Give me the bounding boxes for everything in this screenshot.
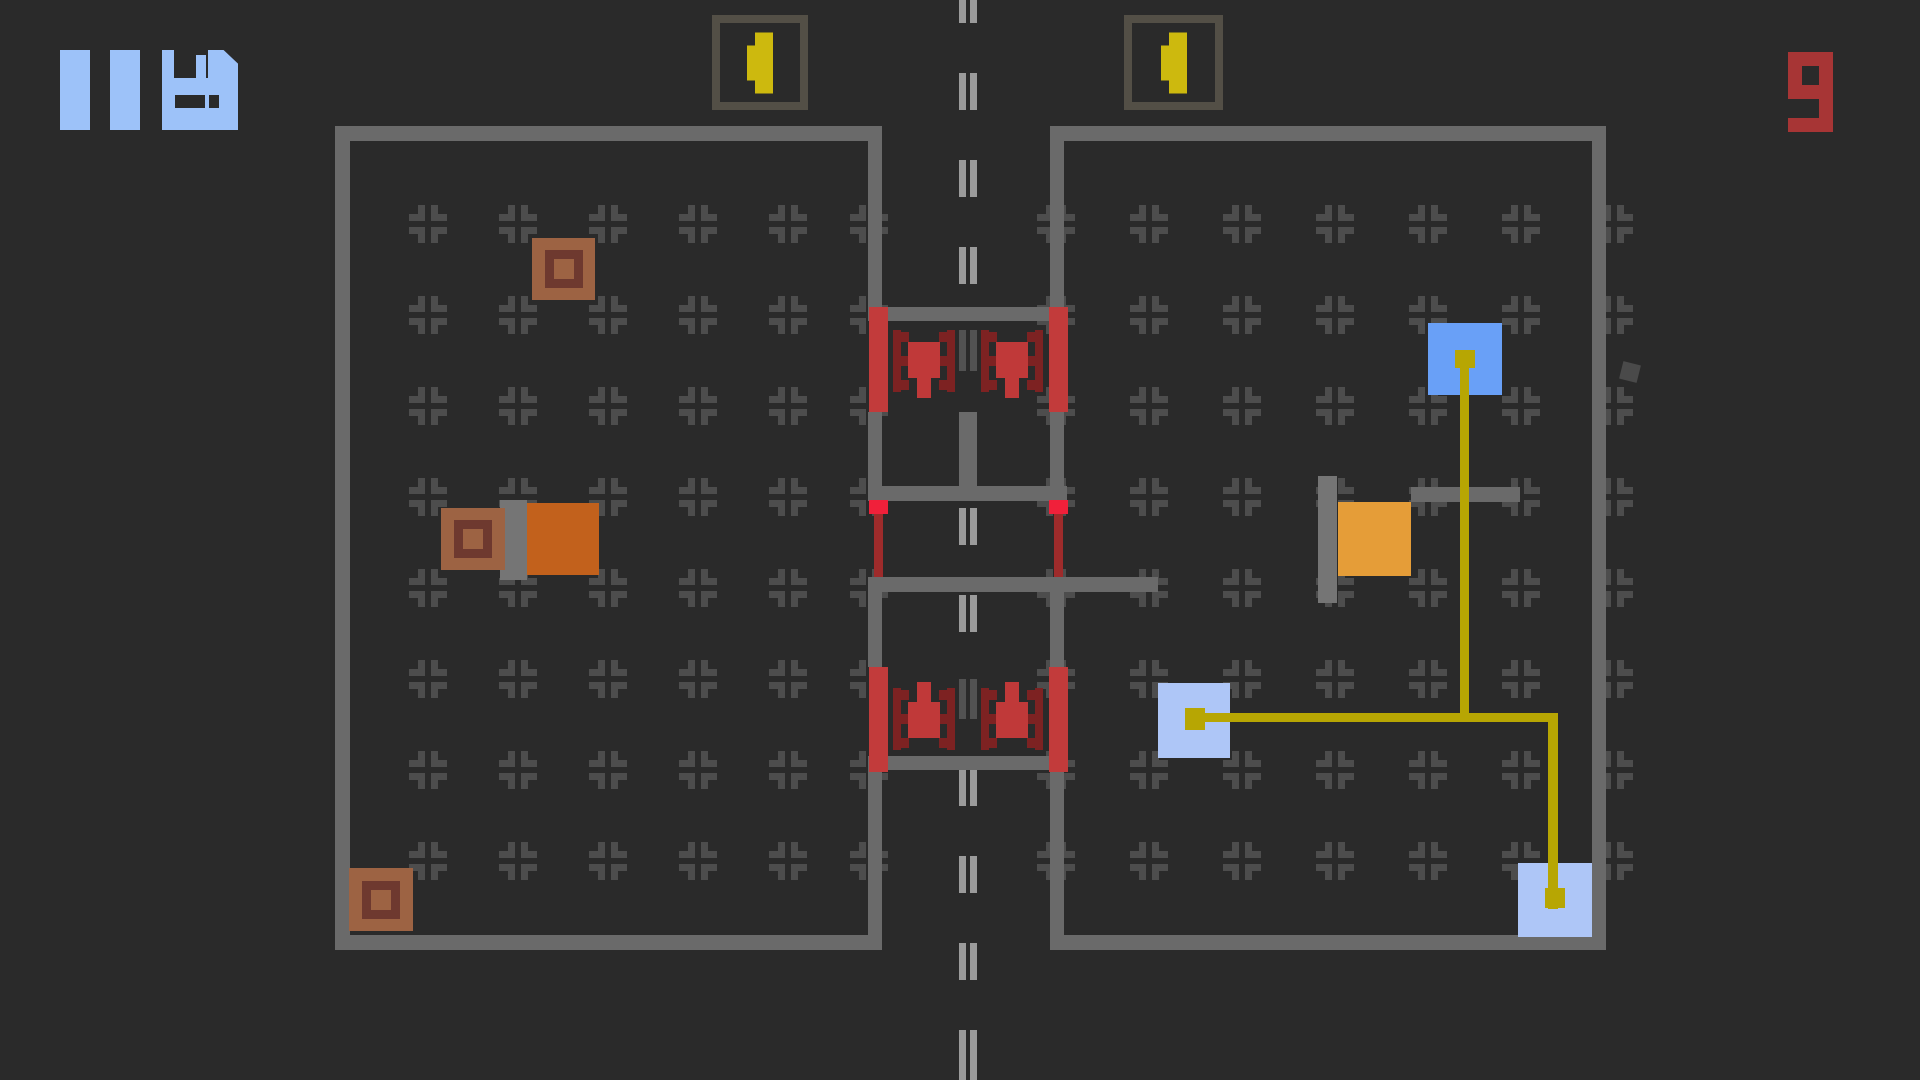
floor-marker-grid xyxy=(1316,387,1354,425)
emitter-cap xyxy=(869,500,888,514)
floor-marker-grid xyxy=(769,478,807,516)
floor-marker-grid xyxy=(769,205,807,243)
floor-marker-grid xyxy=(1409,660,1447,698)
turret-barrel xyxy=(1005,682,1019,702)
resource-crate[interactable] xyxy=(532,238,595,300)
floppy-label xyxy=(175,95,205,108)
turret-up[interactable] xyxy=(893,682,955,750)
machine-block-amber[interactable] xyxy=(1338,502,1411,576)
floor-marker-grid xyxy=(679,842,717,880)
floor-marker-grid xyxy=(1502,387,1540,425)
barrier-emitter[interactable] xyxy=(1049,500,1068,577)
barrier-emitter[interactable] xyxy=(869,500,888,577)
floor-marker-grid xyxy=(1316,296,1354,334)
floor-marker-grid xyxy=(769,387,807,425)
floor-marker-grid xyxy=(1502,296,1540,334)
turret-track xyxy=(1035,330,1043,392)
floor-marker-grid xyxy=(1223,478,1261,516)
floor-marker-grid xyxy=(589,751,627,789)
floor-marker-grid xyxy=(1130,205,1168,243)
wall xyxy=(868,770,882,935)
turret-body xyxy=(908,342,940,378)
save-button[interactable] xyxy=(162,50,238,130)
wall xyxy=(1592,126,1606,950)
floor-marker-grid xyxy=(499,751,537,789)
floor-marker-grid xyxy=(589,842,627,880)
floor-marker-grid xyxy=(409,296,447,334)
pause-icon xyxy=(60,50,90,130)
floor-marker-grid xyxy=(589,296,627,334)
floor-marker-grid xyxy=(409,842,447,880)
floor-marker-grid xyxy=(499,660,537,698)
floor-marker-grid xyxy=(409,660,447,698)
floppy-disk-icon xyxy=(162,50,238,130)
floor-marker-grid xyxy=(1223,842,1261,880)
floor-marker-grid xyxy=(1409,205,1447,243)
wall xyxy=(959,412,977,492)
floor-marker-grid xyxy=(409,751,447,789)
floor-marker-grid xyxy=(1316,205,1354,243)
pause-icon xyxy=(110,50,140,130)
floor-marker-grid xyxy=(409,205,447,243)
floor-marker-grid xyxy=(679,660,717,698)
road-centerline-dim xyxy=(959,321,977,412)
floor-marker-grid xyxy=(589,660,627,698)
dock-bar[interactable] xyxy=(1318,476,1337,603)
floor-marker-grid xyxy=(1316,842,1354,880)
floor-marker-grid xyxy=(1223,296,1261,334)
road-centerline-dim xyxy=(959,665,977,755)
emitter-beam xyxy=(874,514,883,577)
crate-ring xyxy=(454,520,492,558)
turret-track xyxy=(1035,688,1043,750)
turret-track xyxy=(947,330,955,392)
floor-marker-grid xyxy=(679,205,717,243)
floor-marker-grid xyxy=(679,478,717,516)
floor-marker-grid xyxy=(679,296,717,334)
conveyor-line xyxy=(1548,713,1558,909)
wall xyxy=(868,592,882,667)
wall xyxy=(1050,126,1064,307)
floor-marker-grid xyxy=(769,569,807,607)
floor-marker-grid xyxy=(679,569,717,607)
floor-marker-grid xyxy=(1502,205,1540,243)
gate-post[interactable] xyxy=(869,307,888,412)
flag-icon xyxy=(1161,32,1187,93)
floor-marker-grid xyxy=(1130,296,1168,334)
flag-slot[interactable] xyxy=(1124,15,1223,110)
conveyor-node xyxy=(1455,350,1475,368)
turret-track xyxy=(981,330,989,392)
floor-marker-grid xyxy=(1502,660,1540,698)
turret-track xyxy=(893,688,901,750)
gate-post[interactable] xyxy=(1049,667,1068,772)
floor-marker-grid xyxy=(1409,751,1447,789)
turret-track xyxy=(893,330,901,392)
emitter-beam xyxy=(1054,514,1063,577)
floor-marker-grid xyxy=(1502,751,1540,789)
flag-slot[interactable] xyxy=(712,15,808,110)
flag-icon xyxy=(747,32,773,93)
wall xyxy=(335,126,350,950)
floor-marker-grid xyxy=(1409,842,1447,880)
floor-marker-grid xyxy=(409,569,447,607)
wall xyxy=(868,486,1067,501)
floor-marker-grid xyxy=(679,387,717,425)
floor-marker-grid xyxy=(769,842,807,880)
gate-post[interactable] xyxy=(1049,307,1068,412)
conveyor-line xyxy=(1195,713,1558,722)
wall xyxy=(1050,935,1606,950)
crate-ring xyxy=(545,250,583,288)
turret-body xyxy=(996,342,1028,378)
floor-marker-grid xyxy=(1316,751,1354,789)
floor-marker-grid xyxy=(1223,387,1261,425)
turret-barrel xyxy=(917,378,931,398)
gate-post[interactable] xyxy=(869,667,888,772)
wall xyxy=(1050,770,1064,935)
turret-body xyxy=(996,702,1028,738)
floor-marker-grid xyxy=(1223,569,1261,607)
wall xyxy=(335,126,882,141)
crate-ring xyxy=(362,881,400,919)
wall xyxy=(335,935,882,950)
wall xyxy=(868,307,1063,321)
wall xyxy=(868,126,882,307)
debris xyxy=(1619,361,1641,383)
floor-marker-grid xyxy=(1409,569,1447,607)
conveyor-node xyxy=(1545,888,1565,908)
resource-crate[interactable] xyxy=(349,868,413,931)
turret-up[interactable] xyxy=(981,682,1043,750)
conveyor-node xyxy=(1185,708,1205,730)
game-screen xyxy=(0,0,1920,1080)
floor-marker-grid xyxy=(499,296,537,334)
floor-marker-grid xyxy=(409,387,447,425)
wall xyxy=(868,412,882,487)
wall xyxy=(868,756,1063,770)
turret-barrel xyxy=(917,682,931,702)
floor-marker-grid xyxy=(769,751,807,789)
wall xyxy=(1050,412,1064,487)
resource-crate[interactable] xyxy=(441,508,505,570)
floor-marker-grid xyxy=(1502,569,1540,607)
turret-body xyxy=(908,702,940,738)
wall xyxy=(1050,592,1064,667)
turret-barrel xyxy=(1005,378,1019,398)
floor-marker-grid xyxy=(1130,478,1168,516)
floor-marker-grid xyxy=(499,842,537,880)
playfield xyxy=(0,0,1920,1080)
floor-marker-grid xyxy=(679,751,717,789)
conveyor-line xyxy=(1460,366,1469,722)
turret-down[interactable] xyxy=(893,330,955,398)
turret-track xyxy=(947,688,955,750)
floor-marker-grid xyxy=(1130,842,1168,880)
floor-marker-grid xyxy=(769,296,807,334)
emitter-cap xyxy=(1049,500,1068,514)
turret-down[interactable] xyxy=(981,330,1043,398)
floor-marker-grid xyxy=(769,660,807,698)
floor-marker-grid xyxy=(499,387,537,425)
floppy-label-notch xyxy=(209,95,219,108)
floor-marker-grid xyxy=(1316,660,1354,698)
machine-block-orange[interactable] xyxy=(527,503,599,575)
pause-button[interactable] xyxy=(60,50,140,130)
floor-marker-grid xyxy=(589,387,627,425)
floppy-shutter-slot xyxy=(196,55,206,78)
floor-marker-grid xyxy=(1223,205,1261,243)
turret-track xyxy=(981,688,989,750)
floor-marker-grid xyxy=(1130,387,1168,425)
road-centerline xyxy=(959,0,977,1080)
wall xyxy=(868,577,1158,592)
wall xyxy=(1050,126,1606,141)
